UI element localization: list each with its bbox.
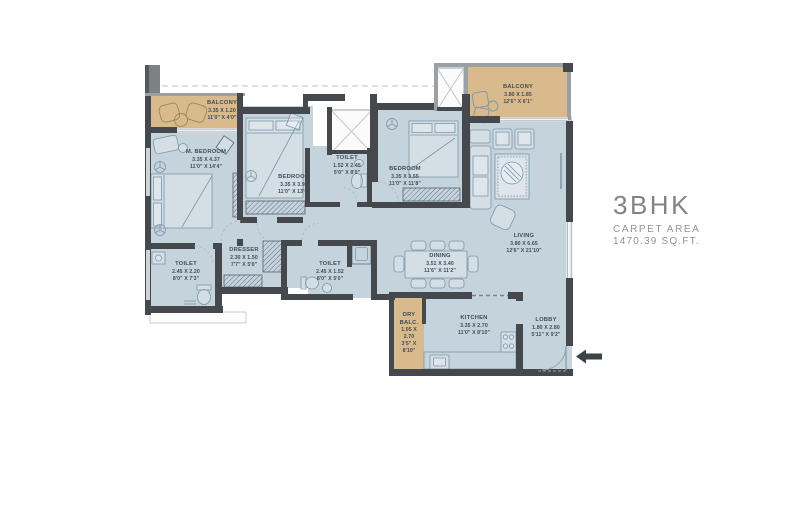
sofa bbox=[470, 146, 491, 209]
stove bbox=[501, 332, 516, 352]
plan-type-title: 3BHK bbox=[613, 190, 700, 221]
middle-bed bbox=[246, 118, 303, 198]
right-bed bbox=[409, 121, 458, 177]
entry-arrow-icon bbox=[576, 350, 602, 364]
lift-shaft-2 bbox=[437, 68, 464, 110]
tv-unit bbox=[470, 130, 490, 143]
carpet-area-label: CARPET AREA bbox=[613, 224, 700, 235]
floor-plan-drawing bbox=[0, 0, 787, 505]
lift-shaft-1 bbox=[331, 110, 372, 153]
rug bbox=[495, 154, 529, 199]
planter-ledge bbox=[150, 312, 246, 323]
master-bed bbox=[151, 174, 212, 228]
plan-title-block: 3BHK CARPET AREA 1470.39 SQ.FT. bbox=[613, 190, 700, 247]
floor-plan-page: BALCONY 3.35 X 1.20 11'0" X 4'0" M. BEDR… bbox=[0, 0, 787, 505]
carpet-area-value: 1470.39 SQ.FT. bbox=[613, 236, 700, 247]
